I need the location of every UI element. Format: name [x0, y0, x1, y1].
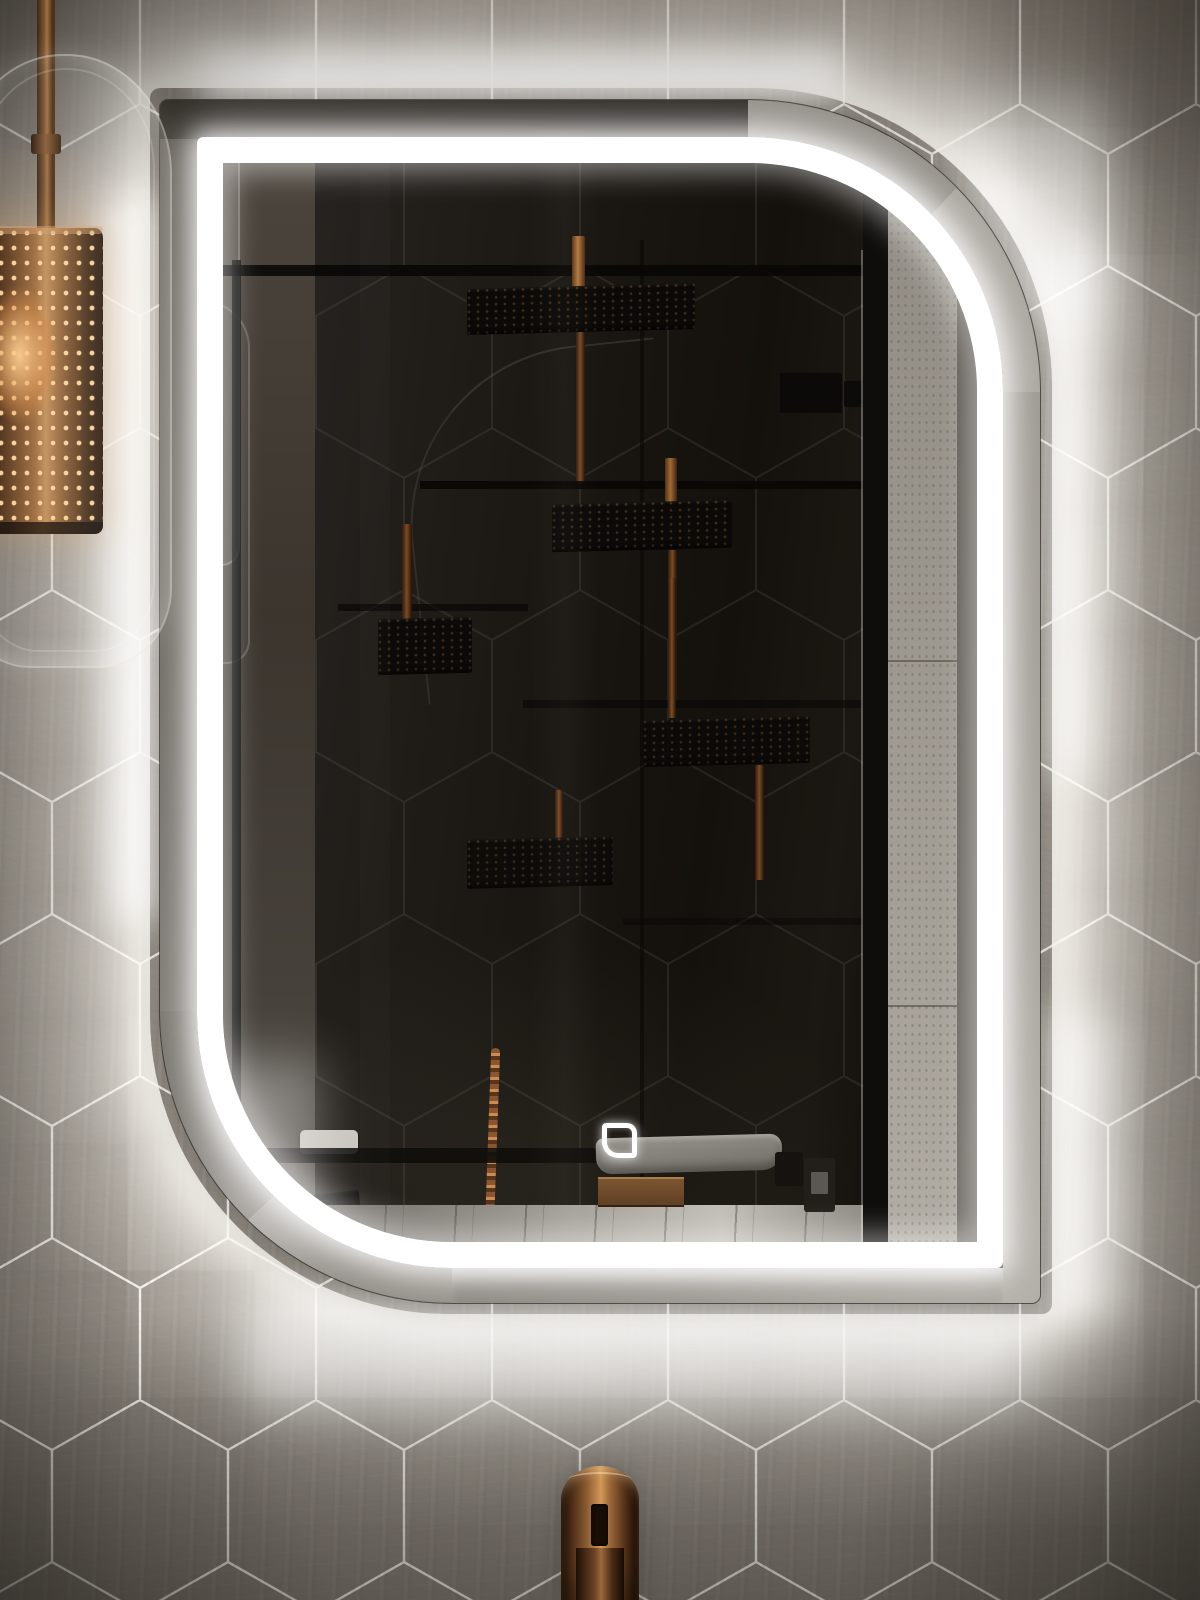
faucet-neck	[576, 1548, 624, 1600]
pendant-light	[0, 0, 260, 700]
touch-sensor-icon[interactable]	[602, 1123, 637, 1158]
faucet-slot	[591, 1504, 608, 1546]
mirror-right-edge-band	[1003, 350, 1040, 1303]
mirror-bottom-edge-band	[452, 1268, 1003, 1303]
led-mirror	[160, 100, 1040, 1303]
led-strip	[197, 137, 1003, 1268]
bathroom-scene	[0, 0, 1200, 1600]
faucet-cap-highlight	[568, 1472, 632, 1488]
faucet	[540, 1450, 680, 1600]
pendant-glass-inner-wall	[0, 68, 155, 652]
